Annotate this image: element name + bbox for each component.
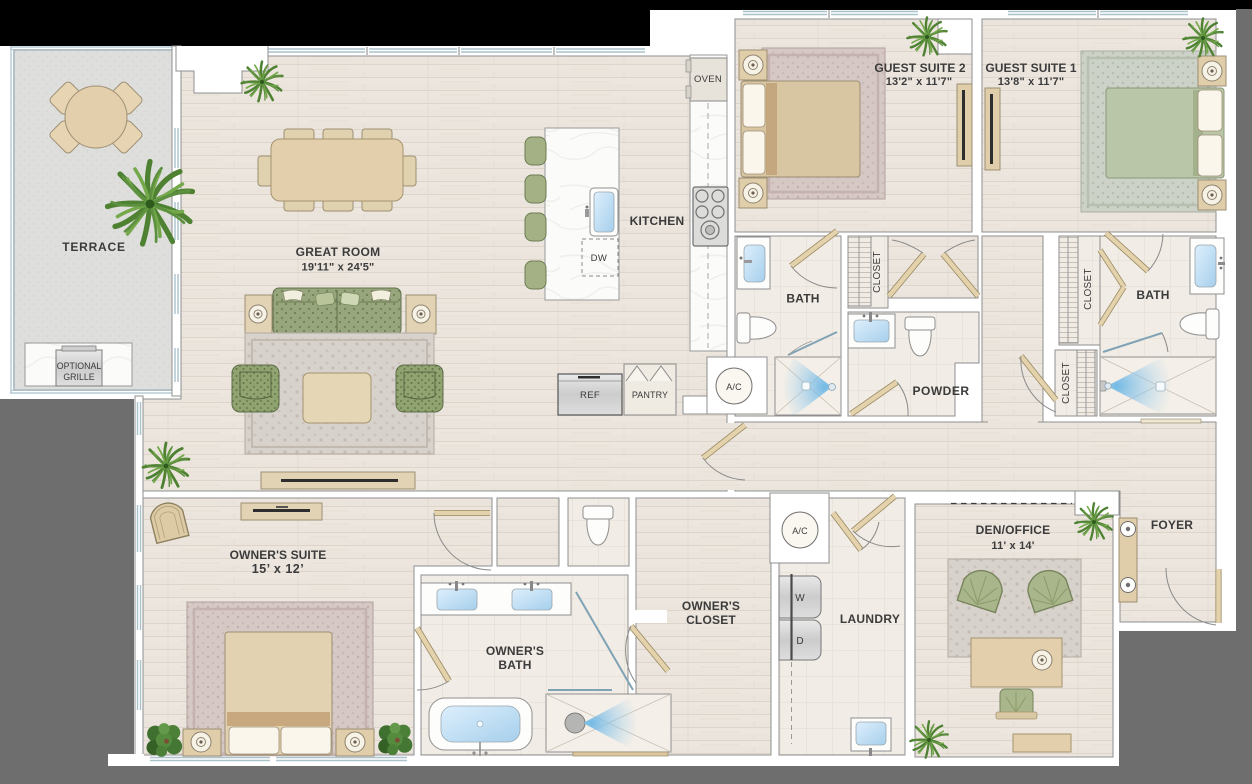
svg-text:BATH: BATH bbox=[1136, 288, 1169, 302]
svg-text:W: W bbox=[795, 593, 805, 604]
svg-text:POWDER: POWDER bbox=[913, 384, 970, 398]
svg-text:FOYER: FOYER bbox=[1151, 518, 1193, 532]
svg-text:GUEST SUITE 2: GUEST SUITE 2 bbox=[874, 61, 966, 75]
svg-text:13'2" x 11'7": 13'2" x 11'7" bbox=[886, 76, 953, 88]
svg-text:OPTIONAL: OPTIONAL bbox=[57, 361, 102, 371]
svg-text:CLOSET: CLOSET bbox=[1061, 362, 1072, 404]
svg-text:BATH: BATH bbox=[786, 292, 819, 306]
svg-text:13'8" x 11'7": 13'8" x 11'7" bbox=[998, 76, 1065, 88]
svg-text:GUEST SUITE 1: GUEST SUITE 1 bbox=[985, 61, 1077, 75]
svg-text:15’ x 12’: 15’ x 12’ bbox=[252, 562, 304, 576]
svg-text:DW: DW bbox=[591, 253, 608, 264]
svg-text:OVEN: OVEN bbox=[694, 74, 722, 85]
svg-text:OWNER'S SUITE: OWNER'S SUITE bbox=[230, 548, 327, 562]
svg-text:REF: REF bbox=[580, 390, 600, 401]
svg-text:CLOSET: CLOSET bbox=[686, 613, 736, 627]
svg-text:DEN/OFFICE: DEN/OFFICE bbox=[976, 523, 1051, 537]
svg-text:KITCHEN: KITCHEN bbox=[630, 214, 685, 228]
svg-text:CLOSET: CLOSET bbox=[872, 251, 883, 293]
svg-text:19'11" x 24'5": 19'11" x 24'5" bbox=[302, 262, 375, 274]
svg-text:A/C: A/C bbox=[726, 382, 742, 392]
svg-text:CLOSET: CLOSET bbox=[1083, 268, 1094, 310]
svg-text:GREAT ROOM: GREAT ROOM bbox=[296, 245, 381, 259]
svg-text:GRILLE: GRILLE bbox=[63, 372, 94, 382]
svg-text:LAUNDRY: LAUNDRY bbox=[840, 612, 900, 626]
svg-text:A/C: A/C bbox=[792, 526, 808, 536]
svg-text:OWNER'S: OWNER'S bbox=[486, 644, 544, 658]
svg-text:OWNER'S: OWNER'S bbox=[682, 599, 740, 613]
svg-text:PANTRY: PANTRY bbox=[632, 390, 668, 400]
svg-text:BATH: BATH bbox=[498, 658, 531, 672]
svg-text:TERRACE: TERRACE bbox=[62, 240, 126, 254]
svg-text:D: D bbox=[796, 636, 803, 647]
svg-text:11' x 14': 11' x 14' bbox=[991, 540, 1034, 552]
